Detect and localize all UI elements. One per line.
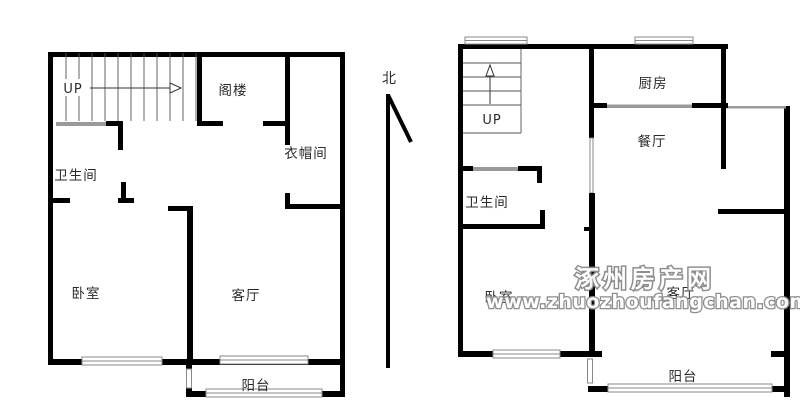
floorplan-image: UP 阁楼 衣帽间 卫生间 卧室 客厅 阳台 北 (0, 0, 800, 407)
right-unit-staircase: UP (463, 49, 521, 133)
window (635, 37, 693, 44)
right-unit-walls (458, 44, 790, 397)
room-label-kitchen: 厨房 (639, 76, 668, 92)
room-label-living-left: 客厅 (232, 287, 261, 304)
room-label-bedroom-left: 卧室 (72, 285, 101, 302)
window (220, 356, 308, 364)
room-label-balcony-right: 阳台 (669, 369, 698, 385)
stair-arrow-icon (170, 83, 181, 93)
window (82, 357, 162, 365)
room-label-dining: 餐厅 (638, 134, 667, 150)
left-unit-staircase: UP (58, 53, 196, 121)
balcony-door (187, 369, 192, 388)
stair-arrow-icon (486, 65, 494, 76)
room-label-attic: 阁楼 (219, 83, 248, 99)
watermark-site-name: 涿州房产网 (575, 265, 715, 293)
stairs-up-label-left: UP (63, 82, 82, 97)
room-label-balcony-left: 阳台 (242, 378, 271, 394)
room-label-cloakroom: 衣帽间 (284, 146, 328, 162)
window (608, 384, 772, 392)
window (465, 37, 527, 44)
balcony-door (588, 359, 593, 383)
north-arrow-shaft (386, 94, 390, 368)
window (493, 350, 560, 358)
left-unit-walls (48, 52, 345, 397)
north-arrow: 北 (382, 71, 411, 368)
stairs-up-label-right: UP (482, 113, 501, 128)
north-label: 北 (382, 71, 396, 87)
watermark: 涿州房产网 www.zhuozhoufangchan.com (486, 265, 800, 313)
north-arrow-barb (388, 95, 411, 142)
floorplan-canvas: UP 阁楼 衣帽间 卫生间 卧室 客厅 阳台 北 (0, 0, 800, 407)
room-label-bathroom-right: 卫生间 (465, 195, 509, 211)
watermark-site-url: www.zhuozhoufangchan.com (486, 291, 800, 313)
room-label-bathroom-left: 卫生间 (54, 168, 98, 184)
